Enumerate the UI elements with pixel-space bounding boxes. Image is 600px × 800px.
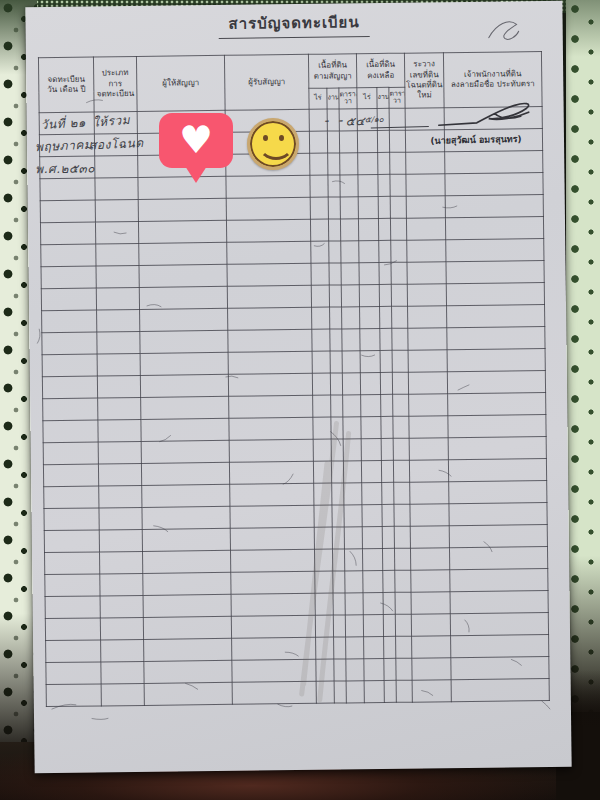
- heart-bubble-tail: [185, 166, 207, 183]
- table-cell: [340, 175, 358, 197]
- table-cell: [226, 175, 310, 198]
- table-cell: [406, 152, 445, 174]
- table-cell: [344, 549, 362, 571]
- table-cell: [408, 372, 447, 394]
- table-cell: [332, 527, 344, 549]
- subheader-rai: ไร่: [357, 88, 377, 109]
- table-cell: [361, 416, 381, 438]
- table-cell: [360, 329, 380, 351]
- handwritten-rai-dash: -: [324, 113, 329, 128]
- table-cell: [95, 177, 138, 200]
- table-cell: [44, 508, 99, 531]
- table-cell: [331, 417, 343, 439]
- table-cell: [395, 570, 411, 592]
- table-cell: [411, 592, 450, 614]
- table-row: [46, 678, 549, 706]
- table-cell: [446, 238, 544, 261]
- table-cell: [101, 683, 144, 706]
- header-registration-date: จดทะเบียน วัน เดือน ปี: [38, 57, 94, 113]
- table-cell: [227, 285, 311, 308]
- table-cell: [44, 486, 99, 509]
- table-cell: [412, 680, 451, 702]
- table-cell: [312, 329, 330, 351]
- table-cell: [448, 458, 546, 481]
- table-cell: [310, 175, 328, 197]
- table-cell: [411, 570, 450, 592]
- table-cell: [359, 241, 379, 263]
- table-cell: [382, 482, 394, 504]
- table-cell: [45, 618, 100, 641]
- table-cell: [344, 505, 362, 527]
- table-cell: [143, 594, 231, 617]
- table-cell: [364, 658, 384, 680]
- table-cell: [395, 592, 411, 614]
- table-cell: [380, 306, 392, 328]
- table-cell: [44, 530, 99, 553]
- table-cell: [447, 370, 545, 393]
- table-cell: [393, 394, 409, 416]
- table-cell: [407, 284, 446, 306]
- table-cell: [43, 398, 98, 421]
- table-cell: [43, 464, 98, 487]
- table-cell: [231, 571, 315, 594]
- subheader-sqwa: ตาราง วา: [389, 87, 405, 108]
- table-cell: [334, 681, 346, 703]
- table-cell: [332, 505, 344, 527]
- table-cell: [449, 480, 547, 503]
- table-cell: [312, 373, 330, 395]
- table-cell: [228, 351, 312, 374]
- table-cell: [315, 571, 333, 593]
- table-cell: [313, 417, 331, 439]
- handwritten-date-year: พ.ศ.๒๕๓๐: [35, 158, 95, 178]
- handwritten-date-month: พฤษภาคม: [35, 135, 93, 157]
- table-cell: [314, 483, 332, 505]
- table-cell: [448, 392, 546, 415]
- table-cell: [342, 329, 360, 351]
- table-cell: [343, 395, 361, 417]
- table-cell: [100, 573, 143, 596]
- table-cell: [97, 375, 140, 398]
- table-cell: [332, 549, 344, 571]
- subheader-rai: ไร่: [309, 88, 327, 109]
- table-cell: [448, 436, 546, 459]
- table-cell: [392, 372, 408, 394]
- table-cell: [449, 524, 547, 547]
- table-cell: [40, 178, 95, 201]
- table-cell: [311, 241, 329, 263]
- table-cell: [330, 373, 342, 395]
- table-cell: [328, 197, 340, 219]
- table-cell: [447, 304, 545, 327]
- table-cell: [451, 634, 549, 657]
- table-cell: [406, 218, 445, 240]
- table-cell: [394, 504, 410, 526]
- table-cell: [342, 307, 360, 329]
- header-promisee: ผู้รับสัญญา: [224, 54, 309, 110]
- table-cell: [141, 462, 229, 485]
- table-cell: [144, 638, 232, 661]
- table-cell: [315, 593, 333, 615]
- table-cell: [98, 441, 141, 464]
- table-cell: [316, 681, 334, 703]
- table-cell: [358, 219, 378, 241]
- table-cell: [362, 548, 382, 570]
- table-cell: [364, 636, 384, 658]
- table-cell: [377, 130, 389, 152]
- table-cell: [345, 593, 363, 615]
- table-cell: [394, 482, 410, 504]
- table-cell: [142, 506, 230, 529]
- table-cell: [409, 438, 448, 460]
- table-cell: [381, 416, 393, 438]
- heart-reaction-sticker: ♥: [159, 113, 233, 187]
- table-cell: [43, 442, 98, 465]
- table-cell: [310, 153, 328, 175]
- table-cell: [411, 614, 450, 636]
- table-cell: [45, 596, 100, 619]
- table-cell: [384, 680, 396, 702]
- table-cell: [382, 526, 394, 548]
- table-cell: [363, 570, 383, 592]
- table-cell: [406, 196, 445, 218]
- table-cell: [395, 614, 411, 636]
- table-cell: [231, 615, 315, 638]
- table-cell: [378, 174, 390, 196]
- table-cell: [314, 549, 332, 571]
- table-cell: [144, 682, 232, 705]
- registration-ledger-paper: สารบัญจดทะเบียน จดทะเบียน วัน เดือน ปี ป…: [25, 1, 571, 774]
- table-cell: [139, 286, 227, 309]
- table-cell: [364, 680, 384, 702]
- table-cell: [381, 460, 393, 482]
- table-cell: [358, 175, 378, 197]
- header-area-remaining: เนื้อที่ดิน คงเหลือ: [356, 53, 404, 88]
- sqwa-whole: ๕๔: [346, 114, 365, 128]
- table-cell: [328, 175, 340, 197]
- table-cell: [97, 309, 140, 332]
- handwritten-date-day: วันที่ ๒๑: [40, 112, 86, 134]
- table-cell: [345, 615, 363, 637]
- table-cell: [340, 153, 358, 175]
- table-cell: [445, 194, 543, 217]
- table-cell: [99, 507, 142, 530]
- table-cell: [46, 662, 101, 685]
- table-cell: [346, 659, 364, 681]
- table-cell: [362, 504, 382, 526]
- table-cell: [340, 197, 358, 219]
- table-cell: [391, 284, 407, 306]
- table-cell: [98, 419, 141, 442]
- table-cell: [96, 287, 139, 310]
- table-cell: [314, 505, 332, 527]
- table-cell: [392, 306, 408, 328]
- table-cell: [384, 658, 396, 680]
- table-cell: [330, 307, 342, 329]
- table-cell: [394, 526, 410, 548]
- table-cell: [330, 351, 342, 373]
- photographed-document-scene: สารบัญจดทะเบียน จดทะเบียน วัน เดือน ปี ป…: [0, 0, 600, 800]
- table-cell: [391, 240, 407, 262]
- table-cell: [408, 328, 447, 350]
- table-cell: [379, 262, 391, 284]
- table-cell: [229, 439, 313, 462]
- table-cell: [447, 348, 545, 371]
- table-cell: [144, 660, 232, 683]
- table-cell: [392, 350, 408, 372]
- table-cell: [450, 568, 548, 591]
- table-cell: [329, 285, 341, 307]
- table-cell: [138, 220, 226, 243]
- table-cell: [390, 218, 406, 240]
- table-cell: [98, 397, 141, 420]
- table-cell: [314, 527, 332, 549]
- table-cell: [228, 329, 312, 352]
- table-cell: [410, 548, 449, 570]
- subheader-ngan: งาน: [327, 88, 339, 109]
- table-cell: [45, 552, 100, 575]
- header-area-per-contract: เนื้อที่ดิน ตามสัญญา: [308, 54, 356, 89]
- table-cell: [409, 416, 448, 438]
- table-cell: [313, 461, 331, 483]
- table-cell: [40, 222, 95, 245]
- table-cell: [42, 354, 97, 377]
- table-cell: [143, 572, 231, 595]
- table-cell: [341, 285, 359, 307]
- table-cell: [410, 482, 449, 504]
- table-cell: [316, 659, 334, 681]
- table-cell: [141, 440, 229, 463]
- table-cell: [143, 616, 231, 639]
- table-cell: [312, 307, 330, 329]
- table-cell: [396, 658, 412, 680]
- table-cell: [328, 153, 340, 175]
- table-cell: [229, 417, 313, 440]
- table-cell: [97, 331, 140, 354]
- table-cell: [231, 593, 315, 616]
- sqwa-fraction: ๕/๑๐: [365, 115, 384, 124]
- handwritten-registration-type-line1: ให้รวม: [92, 110, 131, 132]
- table-cell: [445, 216, 543, 239]
- table-cell: [363, 614, 383, 636]
- table-cell: [99, 529, 142, 552]
- table-cell: [141, 396, 229, 419]
- table-cell: [328, 219, 340, 241]
- table-cell: [393, 416, 409, 438]
- table-cell: [451, 656, 549, 679]
- officer-printed-name: (นายสุวัฒน์ อมรสุนทร): [415, 132, 537, 149]
- table-cell: [232, 637, 316, 660]
- table-cell: [140, 308, 228, 331]
- table-cell: [100, 551, 143, 574]
- table-cell: [226, 197, 310, 220]
- table-cell: [362, 526, 382, 548]
- table-cell: [101, 639, 144, 662]
- table-cell: [95, 221, 138, 244]
- smiley-face-sticker: [247, 118, 299, 170]
- table-cell: [232, 681, 316, 704]
- table-cell: [378, 218, 390, 240]
- table-cell: [332, 483, 344, 505]
- table-cell: [331, 395, 343, 417]
- table-cell: [138, 198, 226, 221]
- table-cell: [341, 241, 359, 263]
- table-cell: [96, 265, 139, 288]
- table-cell: [384, 636, 396, 658]
- table-cell: [446, 260, 544, 283]
- handwritten-ngan-dash: -: [338, 112, 343, 127]
- table-cell: [330, 329, 342, 351]
- table-cell: [45, 574, 100, 597]
- table-cell: [96, 243, 139, 266]
- table-cell: [142, 528, 230, 551]
- table-cell: [406, 174, 445, 196]
- table-cell: [448, 414, 546, 437]
- table-cell: [226, 219, 310, 242]
- table-cell: [409, 460, 448, 482]
- table-cell: [311, 285, 329, 307]
- table-cell: [345, 571, 363, 593]
- smiley-smile-icon: [258, 128, 294, 160]
- handwritten-registration-type-line2: สองโฉนด: [89, 133, 144, 155]
- table-cell: [334, 659, 346, 681]
- table-cell: [361, 394, 381, 416]
- table-cell: [100, 595, 143, 618]
- table-cell: [41, 288, 96, 311]
- table-cell: [383, 570, 395, 592]
- table-cell: [230, 483, 314, 506]
- table-cell: [42, 332, 97, 355]
- table-cell: [359, 285, 379, 307]
- table-cell: [383, 592, 395, 614]
- table-cell: [360, 351, 380, 373]
- table-cell: [43, 420, 98, 443]
- table-cell: [362, 482, 382, 504]
- table-cell: [333, 593, 345, 615]
- table-cell: [361, 460, 381, 482]
- table-cell: [449, 546, 547, 569]
- table-cell: [98, 463, 141, 486]
- lace-tablecloth-right: [566, 0, 600, 712]
- table-cell: [396, 636, 412, 658]
- table-cell: [227, 263, 311, 286]
- table-cell: [312, 351, 330, 373]
- pen-scribble-mark: [485, 15, 525, 51]
- table-cell: [390, 174, 406, 196]
- table-cell: [343, 417, 361, 439]
- table-cell: [407, 262, 446, 284]
- table-cell: [343, 439, 361, 461]
- table-cell: [393, 438, 409, 460]
- table-cell: [357, 131, 377, 153]
- table-cell: [449, 502, 547, 525]
- table-cell: [450, 590, 548, 613]
- table-cell: [450, 612, 548, 635]
- table-cell: [447, 326, 545, 349]
- table-cell: [41, 244, 96, 267]
- table-cell: [358, 153, 378, 175]
- table-cell: [358, 197, 378, 219]
- table-cell: [381, 394, 393, 416]
- table-cell: [380, 372, 392, 394]
- subheader-ngan: งาน: [377, 87, 389, 108]
- table-cell: [360, 372, 380, 394]
- table-cell: [140, 352, 228, 375]
- subheader-sqwa: ตาราง วา: [339, 88, 357, 109]
- table-cell: [342, 351, 360, 373]
- table-cell: [378, 152, 390, 174]
- table-cell: [228, 307, 312, 330]
- table-cell: [409, 394, 448, 416]
- table-cell: [97, 353, 140, 376]
- table-cell: [359, 263, 379, 285]
- table-cell: [410, 504, 449, 526]
- table-cell: [410, 526, 449, 548]
- table-cell: [310, 219, 328, 241]
- table-cell: [100, 617, 143, 640]
- table-cell: [396, 680, 412, 702]
- table-cell: [391, 262, 407, 284]
- table-cell: [140, 330, 228, 353]
- table-cell: [46, 640, 101, 663]
- table-cell: [41, 266, 96, 289]
- table-cell: [333, 615, 345, 637]
- table-cell: [313, 395, 331, 417]
- table-cell: [344, 527, 362, 549]
- heart-icon: ♥: [159, 114, 233, 166]
- table-cell: [333, 571, 345, 593]
- table-body: [39, 107, 549, 707]
- table-cell: [46, 684, 101, 707]
- table-cell: [383, 614, 395, 636]
- table-cell: [392, 328, 408, 350]
- table-cell: [381, 438, 393, 460]
- table-cell: [229, 395, 313, 418]
- table-cell: [412, 636, 451, 658]
- table-cell: [346, 637, 364, 659]
- table-cell: [230, 527, 314, 550]
- table-cell: [230, 549, 314, 572]
- table-cell: [382, 504, 394, 526]
- table-cell: [327, 131, 339, 153]
- table-cell: [101, 661, 144, 684]
- table-cell: [316, 637, 334, 659]
- table-cell: [329, 263, 341, 285]
- table-cell: [394, 548, 410, 570]
- table-cell: [389, 130, 405, 152]
- table-cell: [40, 200, 95, 223]
- table-cell: [445, 172, 543, 195]
- table-cell: [343, 461, 361, 483]
- header-registration-type: ประเภท การ จดทะเบียน: [93, 56, 137, 112]
- table-cell: [232, 659, 316, 682]
- table-cell: [331, 439, 343, 461]
- table-cell: [339, 131, 357, 153]
- table-cell: [309, 131, 327, 153]
- table-cell: [142, 550, 230, 573]
- table-cell: [412, 658, 451, 680]
- table-cell: [378, 196, 390, 218]
- table-cell: [141, 418, 229, 441]
- table-cell: [341, 263, 359, 285]
- table-cell: [346, 681, 364, 703]
- table-cell: [95, 155, 138, 178]
- table-cell: [361, 438, 381, 460]
- table-cell: [95, 199, 138, 222]
- table-cell: [99, 485, 142, 508]
- table-cell: [390, 152, 406, 174]
- table-cell: [140, 374, 228, 397]
